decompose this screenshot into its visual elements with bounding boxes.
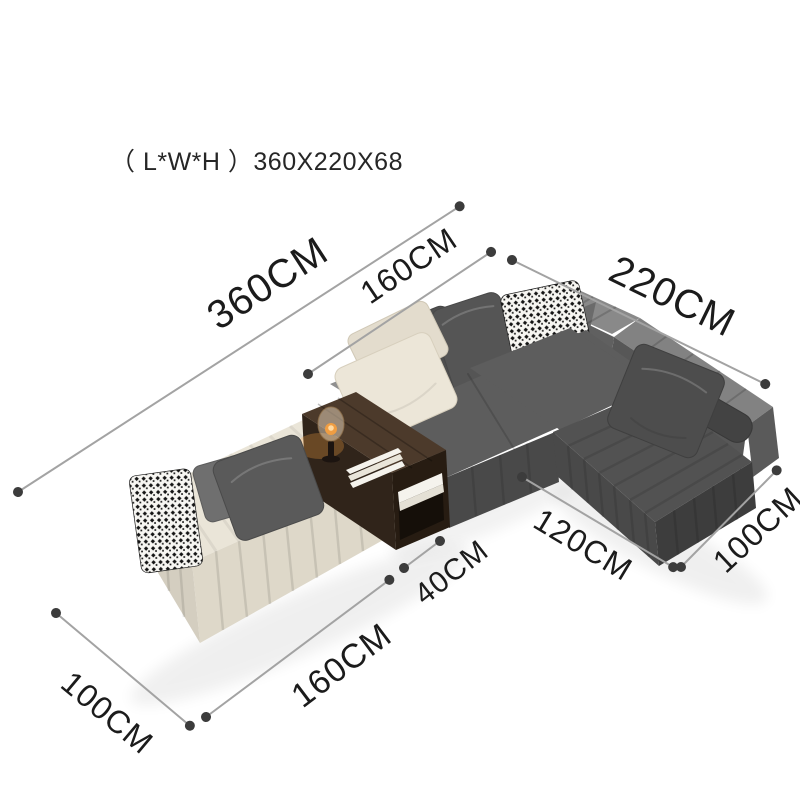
product-dimension-diagram: （ L*W*H ）360X220X68: [0, 0, 800, 800]
sofa-illustration: [0, 0, 800, 800]
pillow-houndstooth: [128, 468, 203, 574]
